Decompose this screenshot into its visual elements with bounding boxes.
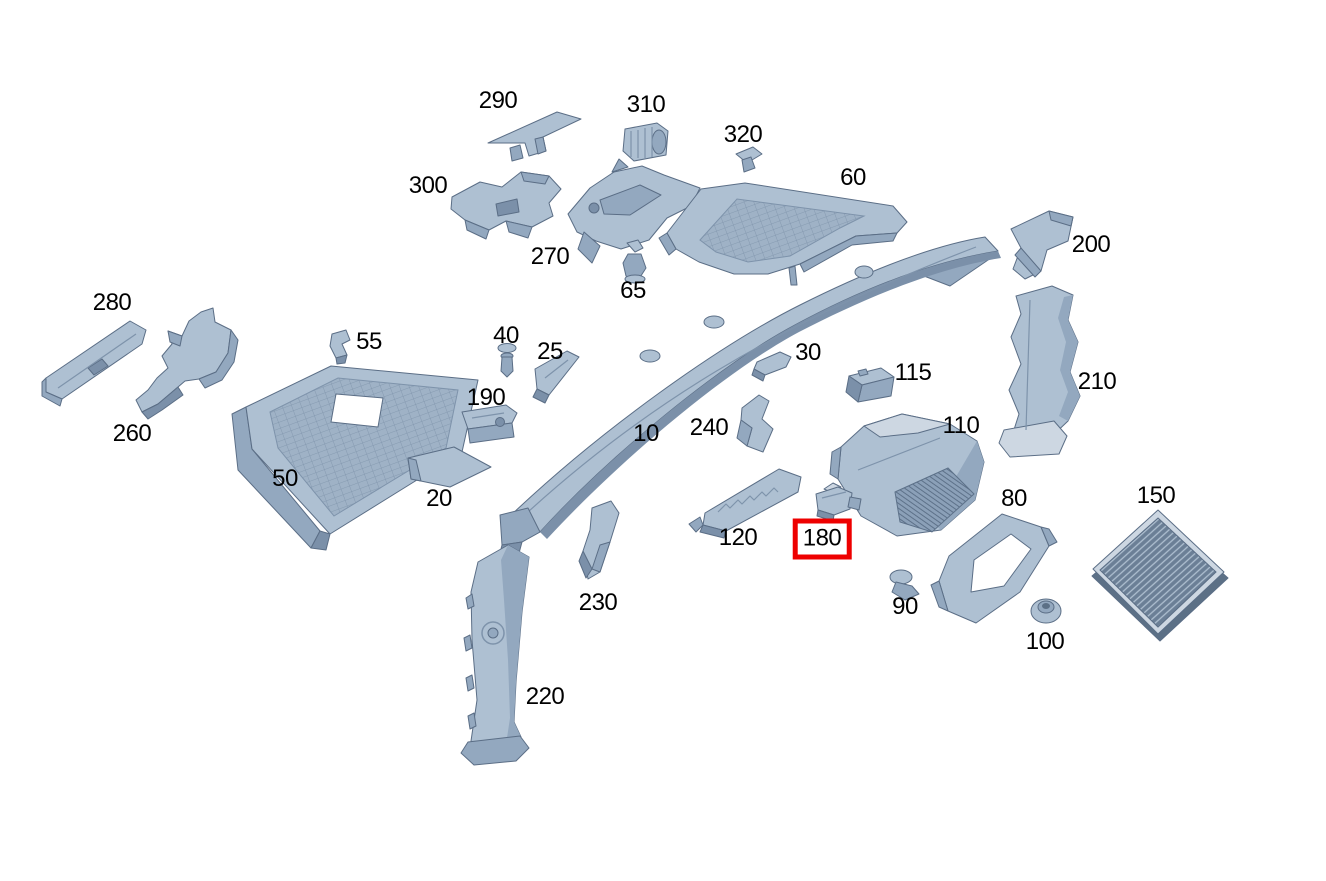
part-label-60[interactable]: 60 [840, 166, 866, 190]
part-label-190[interactable]: 190 [467, 386, 506, 410]
part-label-180-highlighted[interactable]: 180 [793, 519, 852, 560]
part-label-40[interactable]: 40 [493, 324, 519, 348]
part-label-65[interactable]: 65 [620, 279, 646, 303]
part-label-90[interactable]: 90 [892, 595, 918, 619]
labels-layer: 1020253040505560658090100110115120150180… [0, 0, 1326, 881]
part-label-320[interactable]: 320 [724, 123, 763, 147]
parts-diagram: 1020253040505560658090100110115120150180… [0, 0, 1326, 881]
part-label-240[interactable]: 240 [690, 416, 729, 440]
part-label-100[interactable]: 100 [1026, 630, 1065, 654]
part-label-200[interactable]: 200 [1072, 233, 1111, 257]
part-label-80[interactable]: 80 [1001, 487, 1027, 511]
part-label-120[interactable]: 120 [719, 526, 758, 550]
part-label-290[interactable]: 290 [479, 89, 518, 113]
part-label-220[interactable]: 220 [526, 685, 565, 709]
part-label-150[interactable]: 150 [1137, 484, 1176, 508]
part-label-25[interactable]: 25 [537, 340, 563, 364]
part-label-115[interactable]: 115 [895, 361, 932, 385]
part-label-55[interactable]: 55 [356, 330, 382, 354]
part-label-300[interactable]: 300 [409, 174, 448, 198]
part-label-270[interactable]: 270 [531, 245, 570, 269]
part-label-230[interactable]: 230 [579, 591, 618, 615]
part-label-50[interactable]: 50 [272, 467, 298, 491]
part-label-310[interactable]: 310 [627, 93, 666, 117]
part-label-10[interactable]: 10 [633, 422, 659, 446]
part-label-210[interactable]: 210 [1078, 370, 1117, 394]
part-label-30[interactable]: 30 [795, 341, 821, 365]
part-label-110[interactable]: 110 [943, 414, 980, 438]
part-label-280[interactable]: 280 [93, 291, 132, 315]
part-label-260[interactable]: 260 [113, 422, 152, 446]
part-label-20[interactable]: 20 [426, 487, 452, 511]
